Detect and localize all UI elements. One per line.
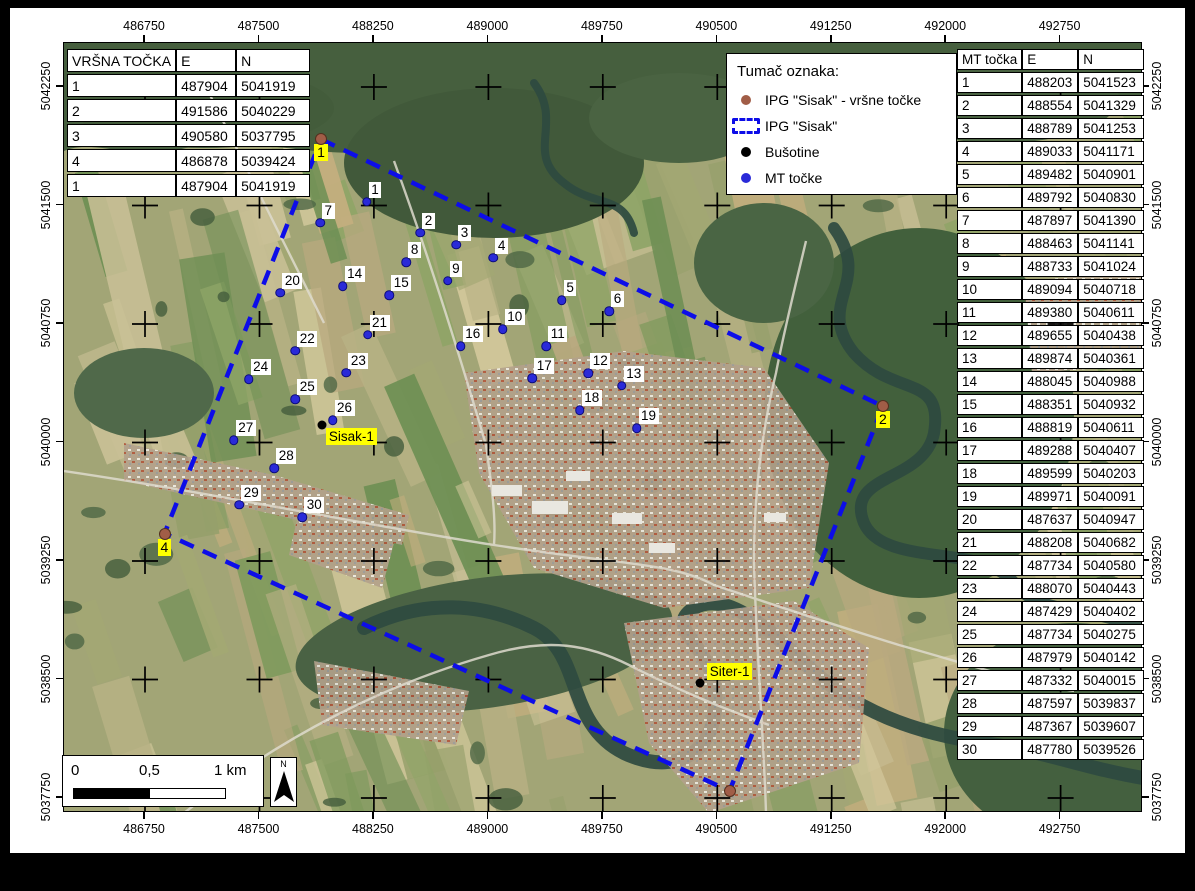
table-row: 154883515040932 [957,394,1144,415]
cell: 488554 [1022,95,1078,116]
mt-point-label: 1 [369,182,382,198]
cell: 487367 [1022,716,1078,737]
ipg-vertex-dot-4 [159,528,171,540]
axis-label-e-487500: 487500 [238,19,280,33]
table-row: 24885545041329 [957,95,1144,116]
mt-point-label: 24 [251,359,271,375]
cell: 488045 [1022,371,1078,392]
mt-point-dot-12 [584,369,594,379]
axis-label-e-492000: 492000 [924,19,966,33]
legend-item-label: MT točke [765,170,822,186]
axis-label-n-5041500: 5041500 [1150,180,1164,229]
axis-label-e-490500: 490500 [695,19,737,33]
cell: 24 [957,601,1022,622]
axis-label-n-5040000: 5040000 [39,417,53,466]
cell: 5040901 [1078,164,1144,185]
cell: 8 [957,233,1022,254]
legend-item-2: Bušotine [727,139,956,165]
cell: 487734 [1022,624,1078,645]
mt-point-dot-1 [362,197,372,207]
cell: 488789 [1022,118,1078,139]
north-arrow-icon [272,771,296,804]
cell: 12 [957,325,1022,346]
mt-point-dot-2 [416,228,426,238]
cell: 1 [67,174,176,197]
table-row: 144880455040988 [957,371,1144,392]
axis-label-e-492000: 492000 [924,822,966,836]
header-cell: E [1022,49,1078,70]
cell: 488733 [1022,256,1078,277]
grid-tick-bottom [143,812,145,819]
cell: 5040947 [1078,509,1144,530]
cell: 26 [957,647,1022,668]
cell: 487979 [1022,647,1078,668]
table-row: 94887335041024 [957,256,1144,277]
mt-point-dot-3 [451,240,461,250]
cell: 487780 [1022,739,1078,760]
axis-label-e-489750: 489750 [581,822,623,836]
grid-tick-left [56,85,63,87]
cell: 488070 [1022,578,1078,599]
mt-point-label: 6 [611,291,624,307]
legend-items: IPG "Sisak" - vršne točkeIPG "Sisak"Bušo… [727,87,956,191]
cell: 5040718 [1078,279,1144,300]
mt-point-label: 8 [408,242,421,258]
mt-point-dot-9 [443,276,453,286]
mt-point-label: 25 [297,379,317,395]
cell: 486878 [176,149,236,172]
cell: 5040203 [1078,463,1144,484]
cell: 488203 [1022,72,1078,93]
cell: 487637 [1022,509,1078,530]
cell: 10 [957,279,1022,300]
legend-item-0: IPG "Sisak" - vršne točke [727,87,956,113]
grid-tick-left [56,204,63,206]
table-row: 264879795040142 [957,647,1144,668]
mt-point-label: 4 [495,238,508,254]
cell: 487734 [1022,555,1078,576]
cell: 5040443 [1078,578,1144,599]
cell: 5041390 [1078,210,1144,231]
cell: 5041329 [1078,95,1144,116]
legend: Tumač oznaka: IPG "Sisak" - vršne točkeI… [726,53,957,195]
axis-label-e-488250: 488250 [352,822,394,836]
mt-point-label: 3 [458,225,471,241]
legend-item-3: MT točke [727,165,956,191]
mt-point-label: 17 [534,358,554,374]
grid-tick-top [1059,35,1061,42]
header-cell: N [236,49,310,72]
table-row: 274873325040015 [957,670,1144,691]
cell: 5040015 [1078,670,1144,691]
cell: 488463 [1022,233,1078,254]
mt-point-dot-10 [498,324,508,334]
table-row: 304877805039526 [957,739,1144,760]
axis-label-e-492750: 492750 [1039,822,1081,836]
mt-point-label: 23 [348,353,368,369]
table-row: 84884635041141 [957,233,1144,254]
table-row: 244874295040402 [957,601,1144,622]
cell: 15 [957,394,1022,415]
cell: 20 [957,509,1022,530]
borehole-dot-Siter-1 [695,678,704,687]
cell: 7 [957,210,1022,231]
cell: 1 [957,72,1022,93]
cell: 5041253 [1078,118,1144,139]
cell: 488208 [1022,532,1078,553]
mt-point-dot-18 [575,406,585,416]
cell: 487904 [176,174,236,197]
cell: 23 [957,578,1022,599]
header-cell: VRŠNA TOČKA [67,49,176,72]
grid-tick-bottom [372,812,374,819]
mt-point-label: 30 [304,497,324,513]
grid-tick-bottom [944,812,946,819]
cell: 29 [957,716,1022,737]
cell: 16 [957,417,1022,438]
cell: 5040830 [1078,187,1144,208]
screenshot-root: { "page": { "axis": { "e_ticks": ["48675… [0,0,1195,891]
cell: 11 [957,302,1022,323]
grid-tick-left [56,678,63,680]
ipg-vertex-label: 4 [158,539,172,556]
axis-label-n-5040750: 5040750 [1150,299,1164,348]
table-row: 184895995040203 [957,463,1144,484]
grid-tick-top [830,35,832,42]
table-row: 34905805037795 [67,124,310,147]
cell: 22 [957,555,1022,576]
table-row: 74878975041390 [957,210,1144,231]
axis-label-e-491250: 491250 [810,822,852,836]
mt-point-label: 12 [590,353,610,369]
cell: 4 [67,149,176,172]
cell: 14 [957,371,1022,392]
mt-point-dot-5 [557,295,567,305]
grid-tick-bottom [716,812,718,819]
mt-point-label: 16 [463,326,483,342]
axis-label-e-487500: 487500 [238,822,280,836]
mt-point-dot-23 [342,368,352,378]
cell: 489599 [1022,463,1078,484]
grid-tick-right [1142,796,1149,798]
cell: 5040361 [1078,348,1144,369]
mt-point-dot-4 [489,253,499,263]
mt-point-dot-13 [617,381,627,391]
cell: 5041171 [1078,141,1144,162]
axis-label-e-486750: 486750 [123,19,165,33]
mt-point-label: 19 [639,408,659,424]
cell: 5040275 [1078,624,1144,645]
table-row: 114893805040611 [957,302,1144,323]
north-arrow: N [270,757,297,807]
axis-label-e-488250: 488250 [352,19,394,33]
grid-tick-top [372,35,374,42]
cell: 5040407 [1078,440,1144,461]
cell: 5041919 [236,74,310,97]
grid-tick-bottom [258,812,260,819]
mt-point-dot-26 [328,415,338,425]
axis-label-n-5037750: 5037750 [1150,773,1164,822]
dashed-rectangle-icon [727,118,765,134]
table-row: 164888195040611 [957,417,1144,438]
scale-label-half-km: 0,5 [139,762,160,779]
cell: 5040682 [1078,532,1144,553]
mt-points-coordinates-table: MT točkaEN148820350415232488554504132934… [957,47,1144,762]
table-row: 174892885040407 [957,440,1144,461]
table-row: 104890945040718 [957,279,1144,300]
cell: 489655 [1022,325,1078,346]
mt-point-label: 15 [391,275,411,291]
circle-icon [727,147,765,157]
mt-point-dot-16 [456,341,466,351]
grid-tick-bottom [830,812,832,819]
table-row: 24915865040229 [67,99,310,122]
axis-label-n-5040750: 5040750 [39,299,53,348]
cell: 5040932 [1078,394,1144,415]
cell: 5039837 [1078,693,1144,714]
cell: 489971 [1022,486,1078,507]
north-label: N [271,759,296,769]
cell: 5040611 [1078,302,1144,323]
table-row: 214882085040682 [957,532,1144,553]
table-row: 254877345040275 [957,624,1144,645]
mt-point-dot-29 [234,500,244,510]
mt-point-label: 18 [582,390,602,406]
table-row: 224877345040580 [957,555,1144,576]
mt-point-label: 13 [624,366,644,382]
borehole-label: Sisak-1 [326,428,377,445]
mt-point-dot-30 [297,513,307,523]
table-row: 14879045041919 [67,74,310,97]
cell: 18 [957,463,1022,484]
mt-point-label: 14 [345,266,365,282]
table-header-row: VRŠNA TOČKAEN [67,49,310,72]
mt-point-label: 26 [335,400,355,416]
axis-label-n-5037750: 5037750 [39,773,53,822]
mt-point-dot-25 [290,394,300,404]
cell: 491586 [176,99,236,122]
mt-point-label: 2 [422,213,435,229]
mt-point-dot-19 [632,423,642,433]
cell: 487332 [1022,670,1078,691]
table-row: 54894825040901 [957,164,1144,185]
mt-point-label: 21 [370,315,390,331]
grid-tick-top [601,35,603,42]
cell: 5039526 [1078,739,1144,760]
table-row: 44868785039424 [67,149,310,172]
legend-item-1: IPG "Sisak" [727,113,956,139]
table-row: 14882035041523 [957,72,1144,93]
grid-tick-top [944,35,946,42]
legend-title: Tumač oznaka: [737,63,956,80]
cell: 489874 [1022,348,1078,369]
borehole-label: Siter-1 [707,663,753,680]
header-cell: N [1078,49,1144,70]
cell: 2 [957,95,1022,116]
mt-point-label: 11 [548,326,567,342]
cell: 3 [67,124,176,147]
cell: 487597 [1022,693,1078,714]
grid-tick-bottom [1059,812,1061,819]
cell: 28 [957,693,1022,714]
cell: 21 [957,532,1022,553]
table-row: 44890335041171 [957,141,1144,162]
axis-label-n-5039250: 5039250 [39,536,53,585]
cell: 25 [957,624,1022,645]
cell: 489033 [1022,141,1078,162]
cell: 5040402 [1078,601,1144,622]
mt-point-dot-21 [363,330,373,340]
ipg-vertex-dot-1 [315,133,327,145]
table-row: 194899715040091 [957,486,1144,507]
scale-bar: 0 0,5 1 km [62,755,264,807]
mt-point-dot-27 [229,435,239,445]
cell: 13 [957,348,1022,369]
axis-label-n-5038500: 5038500 [39,654,53,703]
circle-icon [727,95,765,105]
cell: 5041523 [1078,72,1144,93]
grid-tick-left [56,559,63,561]
axis-label-e-489750: 489750 [581,19,623,33]
ipg-vertex-label: 2 [876,411,890,428]
cell: 5037795 [236,124,310,147]
ipg-vertex-dot-2 [877,400,889,412]
scale-label-1km: 1 km [214,762,247,779]
axis-label-e-489000: 489000 [467,19,509,33]
legend-item-label: IPG "Sisak" - vršne točke [765,92,921,108]
mt-point-dot-20 [276,288,286,298]
cell: 1 [67,74,176,97]
scale-bar-black-segment [74,789,150,798]
cell: 489482 [1022,164,1078,185]
cell: 490580 [176,124,236,147]
axis-label-e-492750: 492750 [1039,19,1081,33]
grid-tick-bottom [601,812,603,819]
cell: 5041024 [1078,256,1144,277]
vertex-coordinates-table: VRŠNA TOČKAEN148790450419192491586504022… [67,47,310,199]
axis-label-n-5042250: 5042250 [1150,62,1164,111]
cell: 488351 [1022,394,1078,415]
mt-point-label: 5 [564,280,577,296]
cell: 3 [957,118,1022,139]
mt-point-label: 22 [297,331,317,347]
axis-label-e-489000: 489000 [467,822,509,836]
map-layout-page: 1234567891011121314151617181920212223242… [10,8,1185,853]
cell: 488819 [1022,417,1078,438]
table-row: 124896555040438 [957,325,1144,346]
grid-tick-top [143,35,145,42]
mt-point-label: 20 [282,273,302,289]
cell: 487429 [1022,601,1078,622]
cell: 19 [957,486,1022,507]
axis-label-e-490500: 490500 [695,822,737,836]
ipg-vertex-dot-3 [724,785,736,797]
cell: 489792 [1022,187,1078,208]
table-header-row: MT točkaEN [957,49,1144,70]
mt-point-dot-17 [528,373,538,383]
cell: 5 [957,164,1022,185]
grid-tick-top [258,35,260,42]
table-row: 234880705040443 [957,578,1144,599]
cell: 27 [957,670,1022,691]
cell: 489380 [1022,302,1078,323]
cell: 5040580 [1078,555,1144,576]
ipg-vertex-label: 1 [314,144,328,161]
axis-label-e-491250: 491250 [810,19,852,33]
cell: 5039424 [236,149,310,172]
mt-point-dot-22 [290,346,300,356]
cell: 5040438 [1078,325,1144,346]
table-row: 134898745040361 [957,348,1144,369]
cell: 2 [67,99,176,122]
grid-tick-left [56,441,63,443]
cell: 5040091 [1078,486,1144,507]
table-row: 294873675039607 [957,716,1144,737]
cell: 5039607 [1078,716,1144,737]
header-cell: E [176,49,236,72]
cell: 5040142 [1078,647,1144,668]
cell: 487897 [1022,210,1078,231]
mt-point-label: 7 [322,203,335,219]
mt-point-label: 28 [276,448,296,464]
cell: 5040988 [1078,371,1144,392]
mt-point-dot-28 [270,464,280,474]
mt-point-label: 9 [450,261,463,277]
cell: 5040229 [236,99,310,122]
mt-point-dot-11 [542,341,552,351]
cell: 489094 [1022,279,1078,300]
mt-point-dot-15 [385,290,395,300]
mt-point-dot-6 [604,307,614,317]
mt-point-label: 10 [505,309,525,325]
cell: 17 [957,440,1022,461]
axis-label-n-5040000: 5040000 [1150,417,1164,466]
grid-tick-bottom [487,812,489,819]
cell: 5041141 [1078,233,1144,254]
grid-tick-top [716,35,718,42]
mt-point-dot-7 [315,218,325,228]
scale-bar-graphic [73,788,226,799]
table-row: 204876375040947 [957,509,1144,530]
grid-tick-top [487,35,489,42]
axis-label-n-5039250: 5039250 [1150,536,1164,585]
mt-point-label: 27 [236,420,256,436]
axis-label-n-5042250: 5042250 [39,62,53,111]
mt-point-dot-24 [244,374,254,384]
cell: 6 [957,187,1022,208]
cell: 487904 [176,74,236,97]
table-row: 14879045041919 [67,174,310,197]
mt-point-label: 29 [241,485,261,501]
cell: 5041919 [236,174,310,197]
mt-point-dot-14 [338,282,348,292]
cell: 9 [957,256,1022,277]
header-cell: MT točka [957,49,1022,70]
axis-label-n-5038500: 5038500 [1150,654,1164,703]
table-row: 34887895041253 [957,118,1144,139]
axis-label-n-5041500: 5041500 [39,180,53,229]
circle-icon [727,173,765,183]
table-row: 284875975039837 [957,693,1144,714]
axis-label-e-486750: 486750 [123,822,165,836]
legend-item-label: IPG "Sisak" [765,118,837,134]
table-row: 64897925040830 [957,187,1144,208]
legend-item-label: Bušotine [765,144,819,160]
cell: 489288 [1022,440,1078,461]
cell: 5040611 [1078,417,1144,438]
scale-label-0: 0 [71,762,79,779]
grid-tick-left [56,322,63,324]
